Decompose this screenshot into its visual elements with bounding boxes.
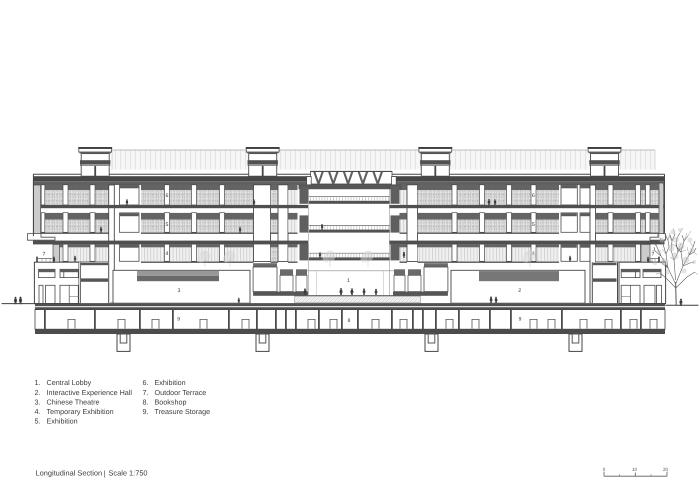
svg-text:8.: 8.: [143, 397, 149, 406]
svg-text:3: 3: [178, 288, 181, 294]
svg-text:7: 7: [652, 251, 655, 257]
svg-text:5: 5: [166, 222, 169, 228]
svg-text:Scale 1:750: Scale 1:750: [109, 469, 148, 478]
svg-text:4: 4: [166, 251, 169, 257]
svg-text:8: 8: [348, 318, 351, 324]
svg-text:9: 9: [519, 317, 522, 323]
svg-text:Longitudinal Section: Longitudinal Section: [36, 469, 103, 478]
svg-text:10: 10: [632, 467, 638, 472]
svg-text:3.: 3.: [35, 397, 41, 406]
svg-text:Outdoor Terrace: Outdoor Terrace: [155, 388, 207, 397]
svg-text:6: 6: [532, 193, 535, 199]
svg-text:1.: 1.: [35, 378, 41, 387]
svg-text:Exhibition: Exhibition: [47, 417, 78, 426]
svg-text:1: 1: [347, 278, 350, 284]
svg-text:7: 7: [43, 251, 46, 257]
svg-text:Bookshop: Bookshop: [155, 397, 187, 406]
svg-text:5.: 5.: [35, 417, 41, 426]
svg-text:Exhibition: Exhibition: [155, 378, 186, 387]
svg-text:6.: 6.: [143, 378, 149, 387]
svg-text:2: 2: [518, 288, 521, 294]
svg-text:7.: 7.: [143, 388, 149, 397]
svg-text:Chinese Theatre: Chinese Theatre: [47, 397, 100, 406]
svg-text:Interactive Experience Hall: Interactive Experience Hall: [47, 388, 133, 397]
svg-text:Temporary Exhibition: Temporary Exhibition: [47, 407, 114, 416]
svg-text:Treasure Storage: Treasure Storage: [155, 407, 211, 416]
svg-text:Central Lobby: Central Lobby: [47, 378, 92, 387]
svg-text:9: 9: [177, 317, 180, 323]
svg-text:5: 5: [532, 222, 535, 228]
svg-text:20: 20: [663, 467, 669, 472]
svg-text:0: 0: [603, 467, 606, 472]
svg-text:2.: 2.: [35, 388, 41, 397]
svg-text:|: |: [104, 469, 106, 478]
svg-text:4.: 4.: [35, 407, 41, 416]
svg-text:9.: 9.: [143, 407, 149, 416]
svg-text:6: 6: [166, 193, 169, 199]
